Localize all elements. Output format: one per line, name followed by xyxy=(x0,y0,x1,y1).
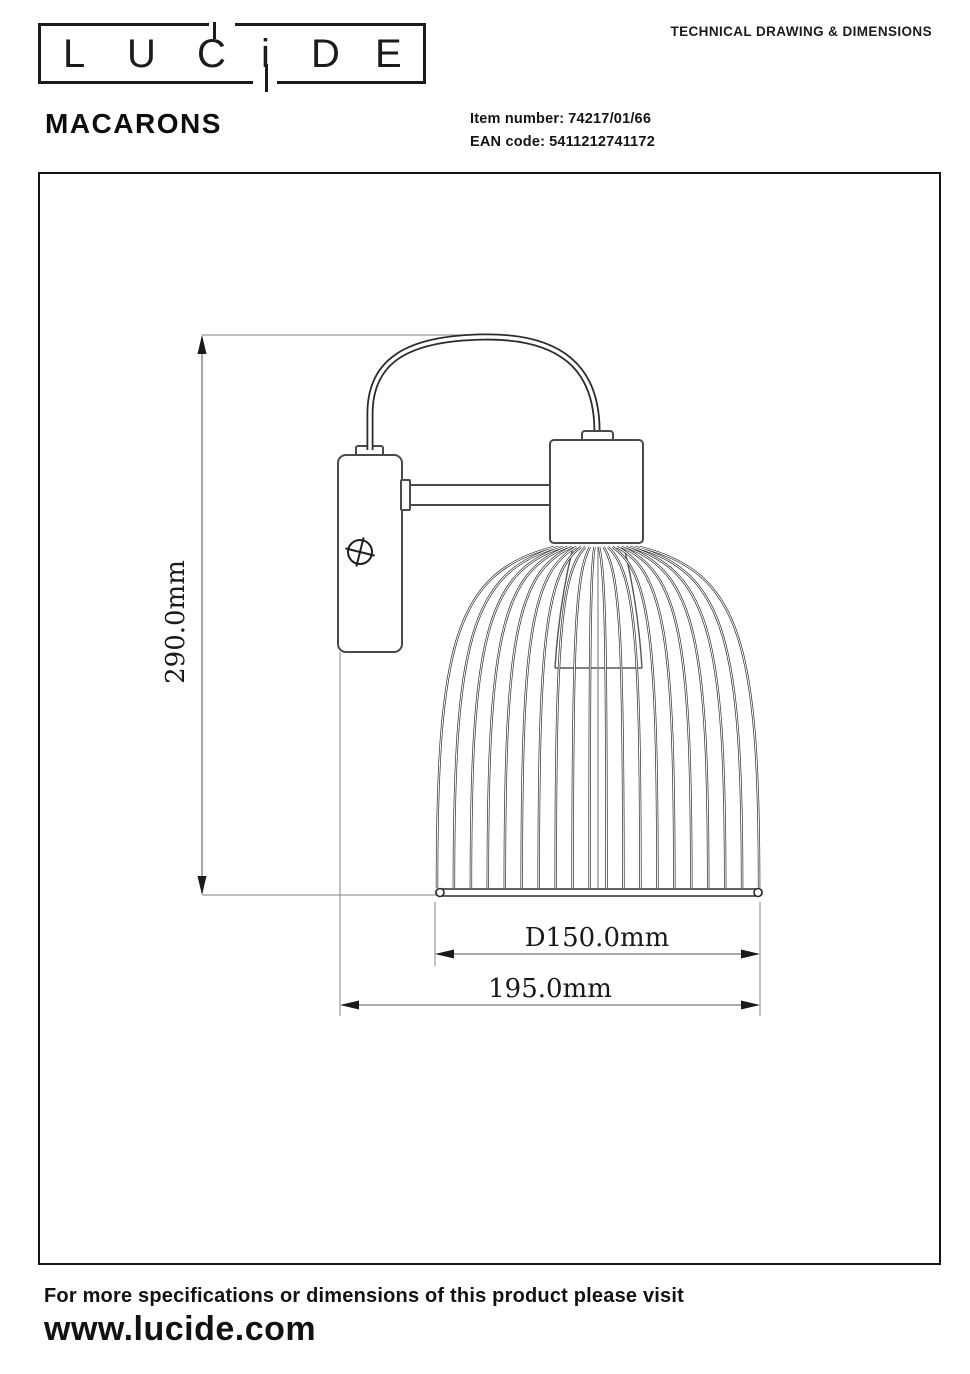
lamp-technical-drawing: 290.0mm xyxy=(40,174,939,1263)
wire-cage-shade xyxy=(436,547,762,897)
logo-letter: C xyxy=(197,26,226,81)
logo-i-stem-mark xyxy=(265,64,268,92)
logo-letter: U xyxy=(127,26,156,81)
logo-letter: L xyxy=(63,26,85,81)
website-url: www.lucide.com xyxy=(44,1310,316,1349)
cage-bottom-rim xyxy=(436,889,762,897)
item-number-value: 74217/01/66 xyxy=(568,111,651,127)
flex-cable xyxy=(370,337,597,450)
footer-note: For more specifications or dimensions of… xyxy=(44,1285,684,1308)
dim-projection-195: 195.0mm xyxy=(340,652,760,1016)
lucide-logo: L U C i D E xyxy=(38,23,426,84)
item-number-label: Item number: xyxy=(470,111,564,127)
lamp-head xyxy=(550,431,643,543)
drawing-frame: 290.0mm xyxy=(38,172,941,1265)
ean-code-value: 5411212741172 xyxy=(549,134,655,150)
dim-height-label: 290.0mm xyxy=(161,560,191,684)
logo-candle-wick-mark xyxy=(213,22,216,39)
dim-diameter-label: D150.0mm xyxy=(525,923,670,953)
dim-height-290: 290.0mm xyxy=(161,335,495,895)
dim-projection-label: 195.0mm xyxy=(488,974,612,1004)
lamp-arm xyxy=(401,480,552,510)
ean-code-row: EAN code:5411212741172 xyxy=(470,131,659,154)
logo-letter: E xyxy=(375,26,402,81)
ean-code-label: EAN code: xyxy=(470,134,545,150)
item-number-row: Item number:74217/01/66 xyxy=(470,108,659,131)
technical-drawing-page: L U C i D E TECHNICAL DRAWING & DIMENSIO… xyxy=(0,0,970,1374)
product-meta: Item number:74217/01/66 EAN code:5411212… xyxy=(470,108,659,154)
product-name: MACARONS xyxy=(45,108,222,140)
document-title: TECHNICAL DRAWING & DIMENSIONS xyxy=(670,24,932,39)
logo-letter: D xyxy=(311,26,340,81)
